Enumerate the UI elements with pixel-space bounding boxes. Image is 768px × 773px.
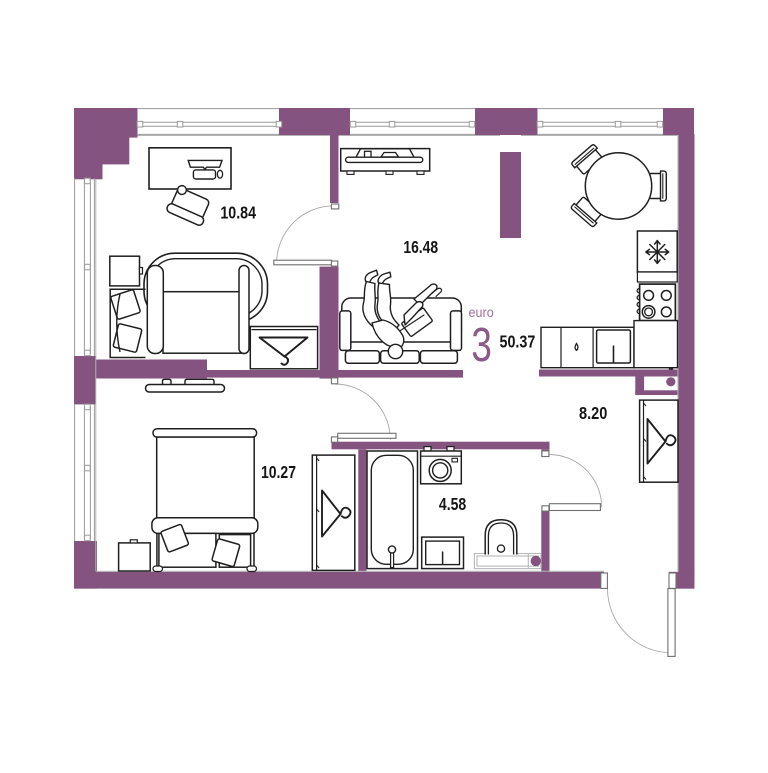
svg-text:3: 3 xyxy=(471,319,492,372)
svg-text:10.27: 10.27 xyxy=(261,462,296,482)
svg-text:10.84: 10.84 xyxy=(220,203,256,223)
svg-text:16.48: 16.48 xyxy=(403,237,438,257)
svg-text:8.20: 8.20 xyxy=(579,403,607,423)
svg-text:euro: euro xyxy=(469,305,494,320)
svg-text:4.58: 4.58 xyxy=(439,494,467,514)
svg-text:50.37: 50.37 xyxy=(500,331,536,351)
